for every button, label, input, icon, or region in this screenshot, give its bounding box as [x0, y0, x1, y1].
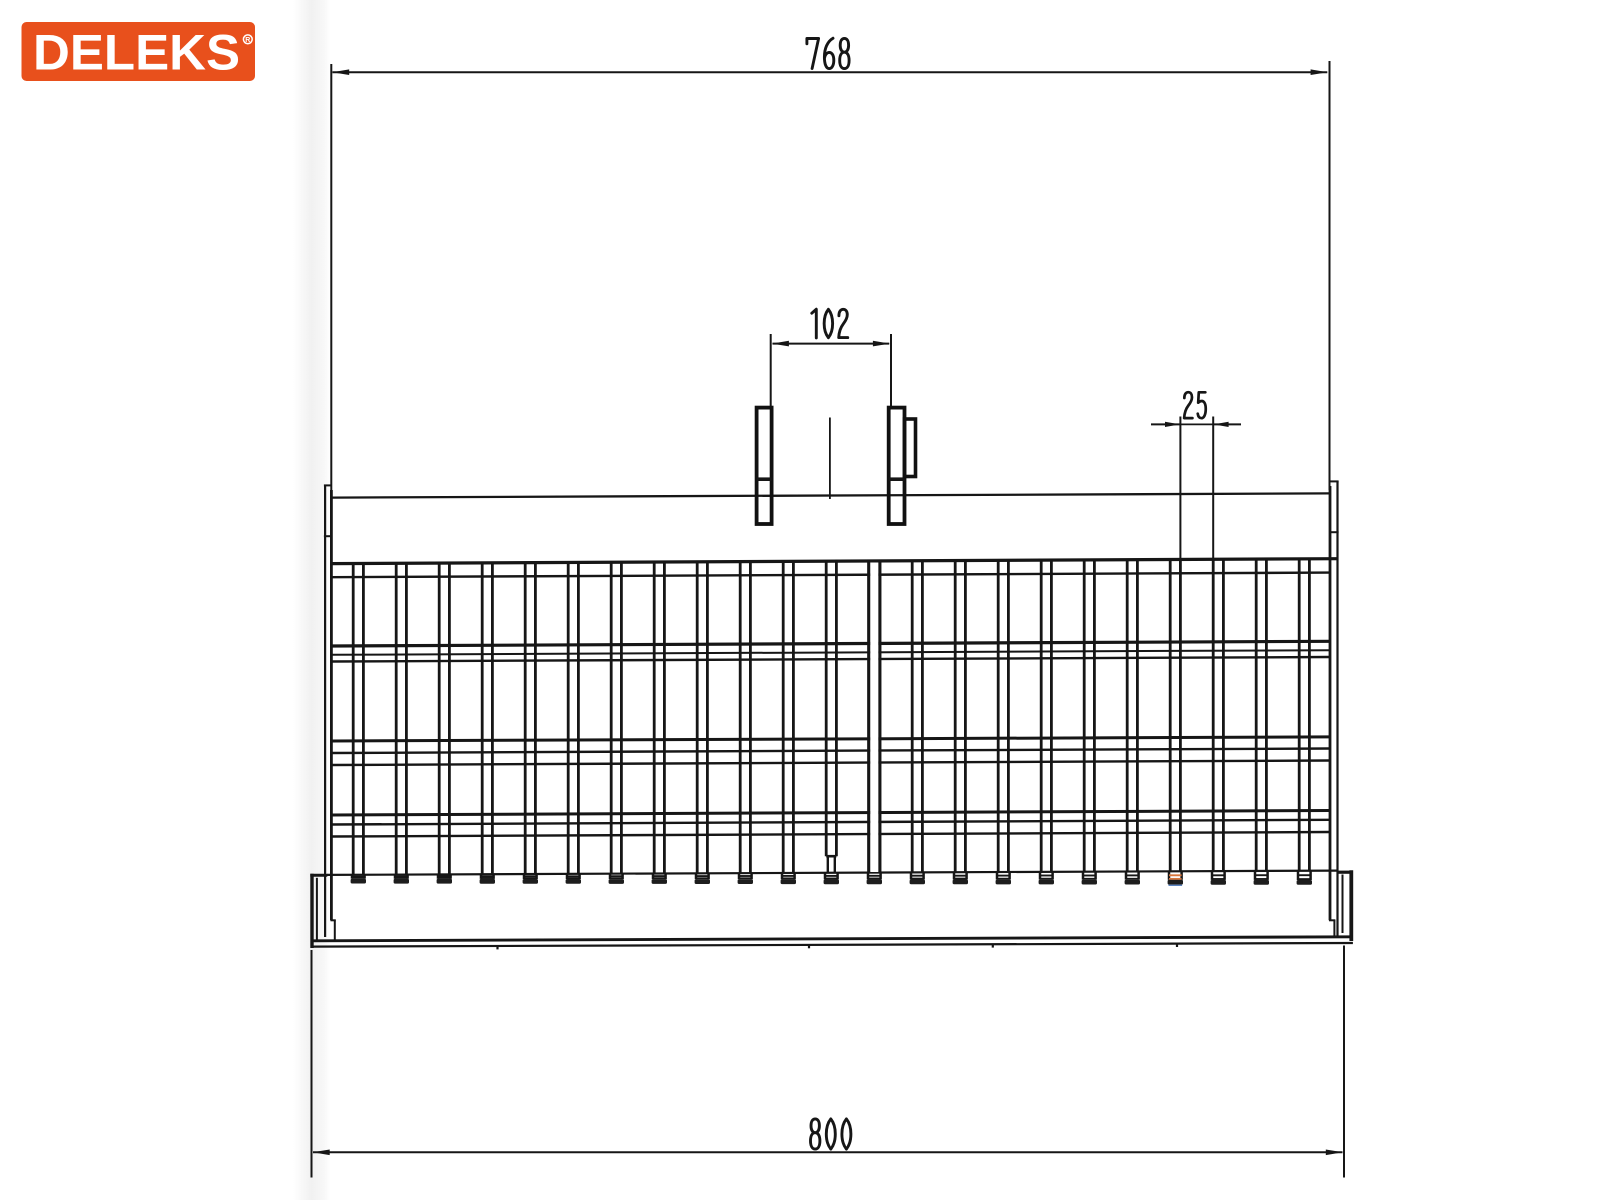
svg-text:DELEKS: DELEKS	[33, 25, 240, 81]
svg-text:R: R	[245, 37, 250, 44]
